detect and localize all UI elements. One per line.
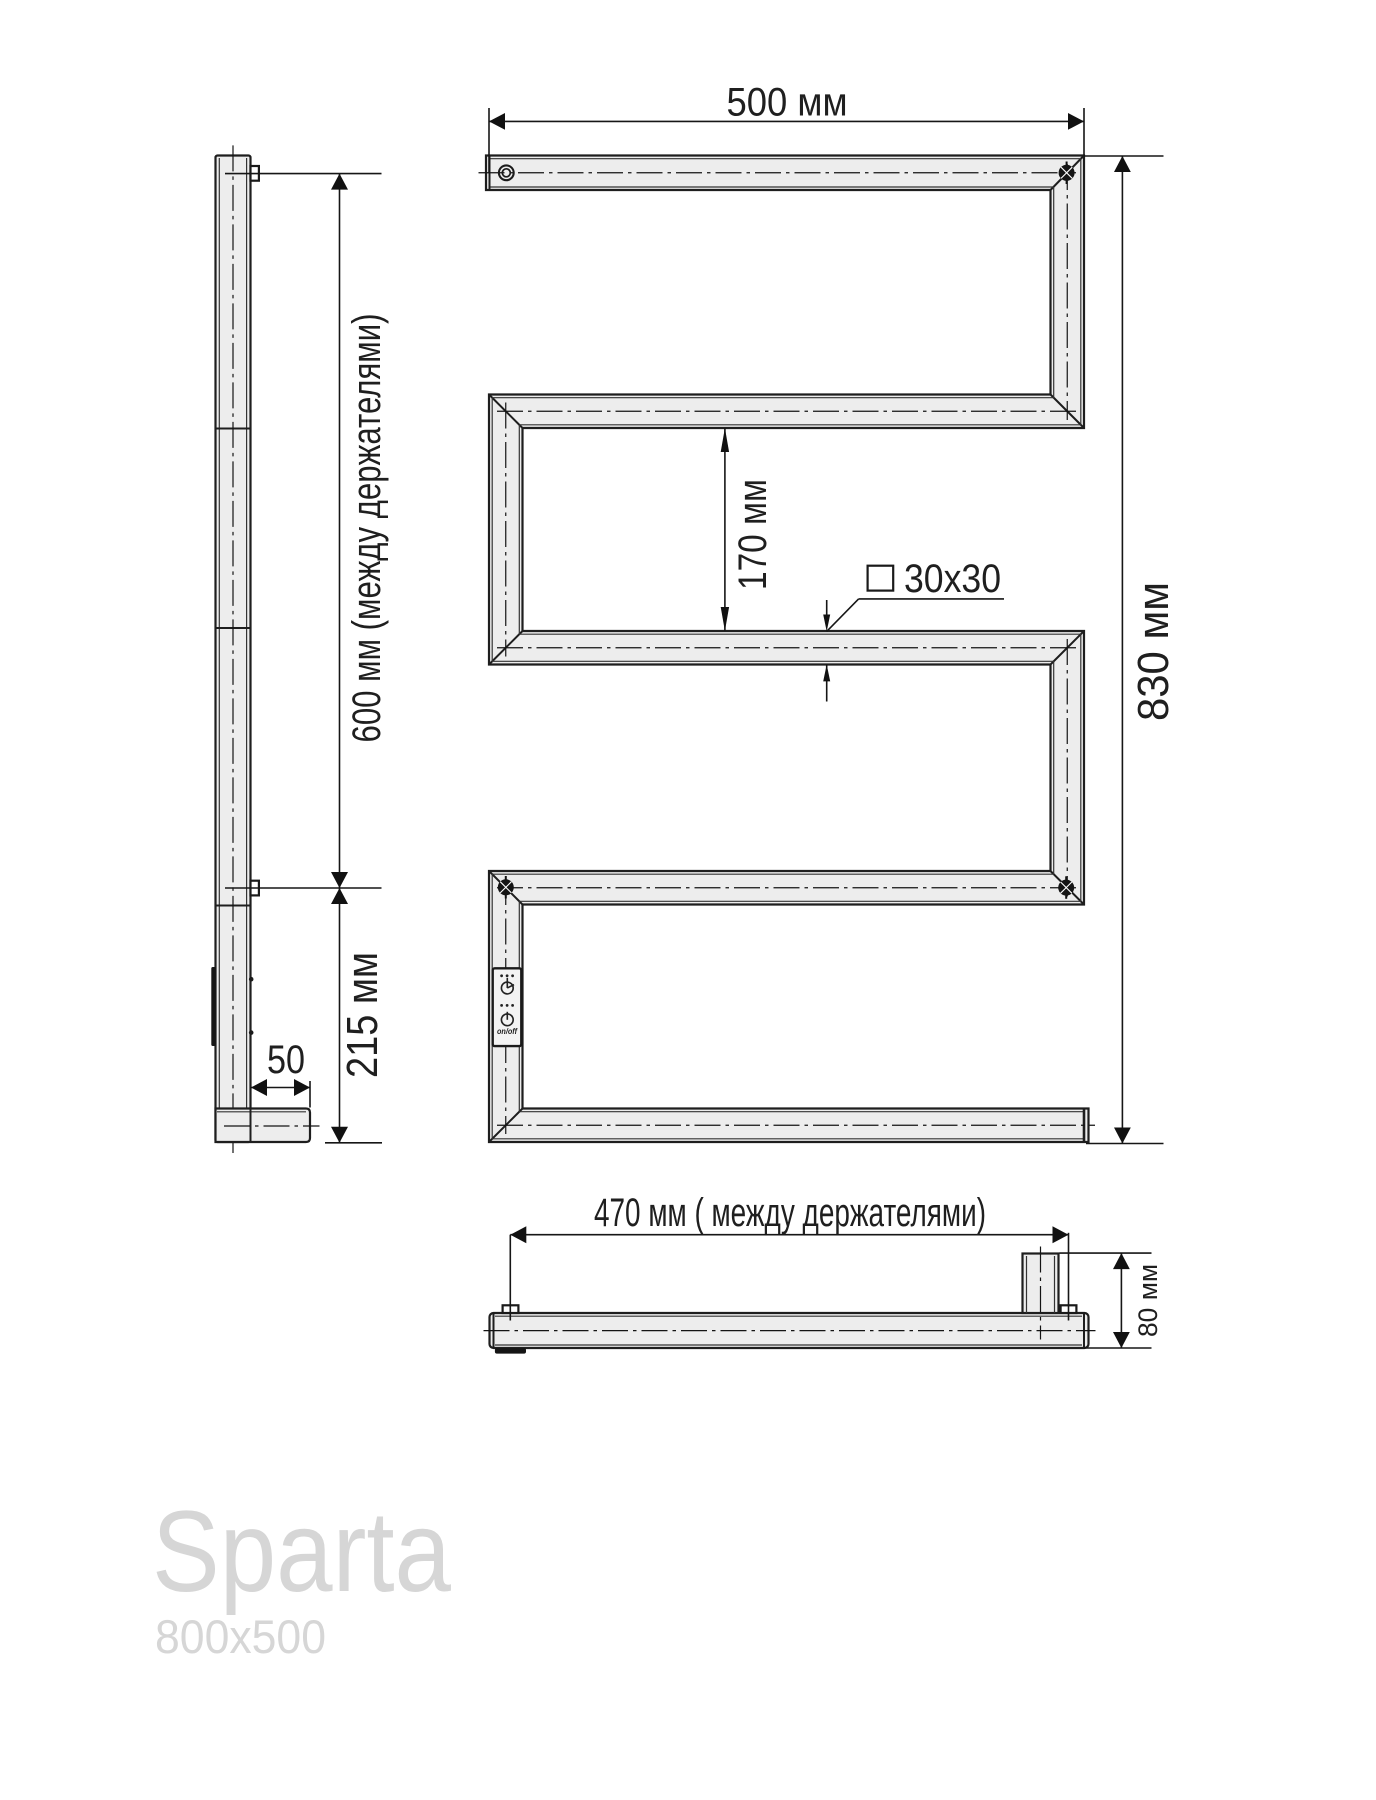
svg-text:800x500: 800x500	[155, 1610, 326, 1663]
svg-text:Sparta: Sparta	[152, 1488, 451, 1616]
svg-text:600 мм (между держателями): 600 мм (между держателями)	[345, 314, 389, 743]
svg-text:170 мм: 170 мм	[731, 479, 775, 590]
svg-text:80 мм: 80 мм	[1133, 1264, 1163, 1337]
svg-text:470 мм ( между держателями): 470 мм ( между держателями)	[594, 1191, 986, 1235]
svg-text:830 мм: 830 мм	[1129, 582, 1178, 721]
svg-text:on/off: on/off	[497, 1027, 518, 1036]
svg-text:50: 50	[267, 1038, 305, 1082]
svg-text:30x30: 30x30	[904, 557, 1001, 601]
svg-text:500 мм: 500 мм	[727, 80, 848, 124]
svg-text:215 мм: 215 мм	[338, 952, 387, 1078]
